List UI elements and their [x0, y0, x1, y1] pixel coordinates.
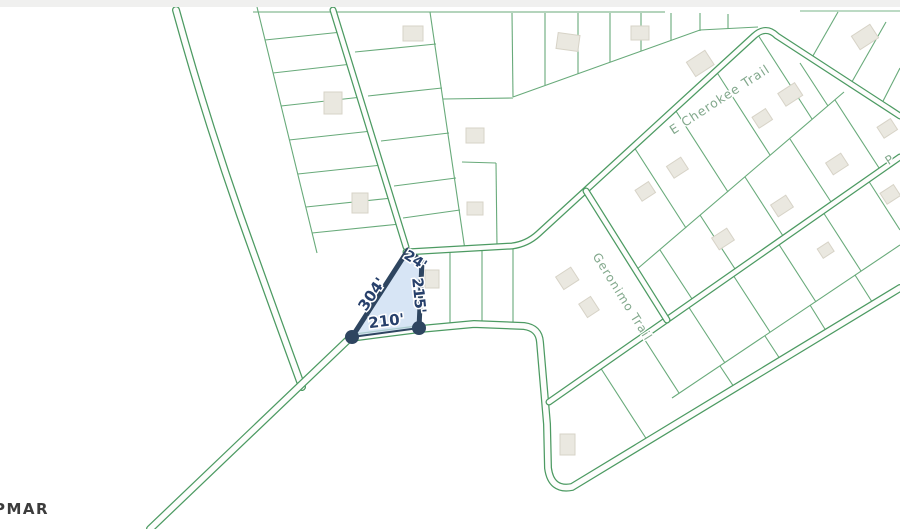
building-footprint: [817, 242, 834, 258]
building-footprint: [877, 119, 897, 139]
plat-map-canvas[interactable]: E Cherokee Trail Geronimo Trail P 24' 21…: [0, 0, 900, 529]
building-footprint: [771, 195, 794, 217]
building-footprint: [556, 33, 580, 52]
building-footprint: [579, 296, 599, 317]
road-label-geronimo-trail: Geronimo Trail: [590, 250, 655, 343]
building-footprint: [324, 92, 342, 114]
parcel-vertex-dot[interactable]: [345, 330, 359, 344]
building-footprint: [631, 26, 649, 40]
map-labels: E Cherokee Trail Geronimo Trail P 24' 21…: [0, 61, 897, 518]
building-footprint: [467, 202, 483, 215]
top-edge-strip: [0, 0, 900, 7]
building-footprint: [752, 109, 772, 129]
building-footprint: [352, 193, 368, 213]
building-footprint: [466, 128, 484, 143]
building-footprint: [826, 153, 849, 175]
building-footprint: [712, 228, 735, 250]
building-footprint: [635, 182, 655, 202]
building-footprint: [556, 267, 579, 289]
map-viewport[interactable]: E Cherokee Trail Geronimo Trail P 24' 21…: [0, 0, 900, 529]
building-footprint: [851, 24, 878, 49]
parcel-vertex-dot[interactable]: [412, 321, 426, 335]
dimension-label-right: 215': [408, 277, 430, 315]
building-footprint: [403, 26, 423, 41]
building-footprints: [324, 24, 900, 455]
building-footprint: [666, 157, 688, 178]
building-footprint: [880, 185, 900, 205]
pmar-watermark: PMAR: [0, 500, 49, 518]
building-footprint: [560, 434, 575, 455]
building-footprint: [778, 83, 803, 106]
